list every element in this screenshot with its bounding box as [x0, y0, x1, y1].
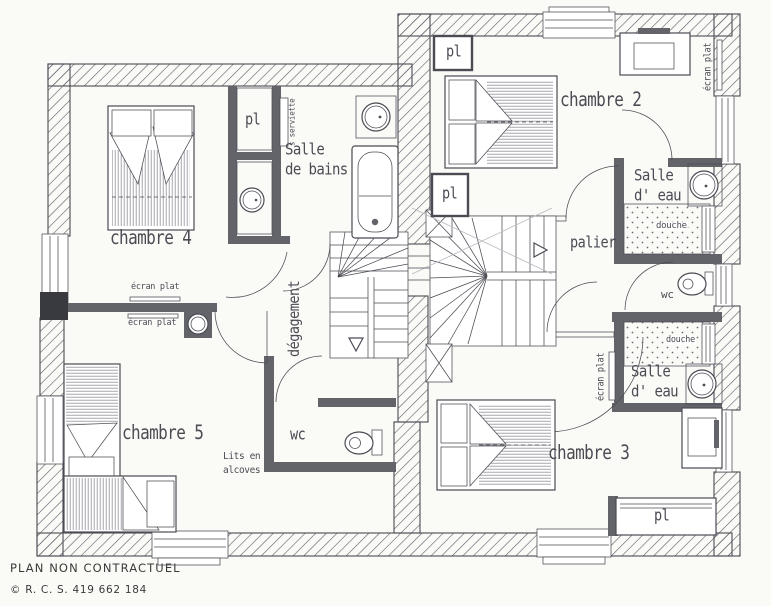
partition-chambre3-palier [547, 332, 614, 337]
window-left-lower [37, 396, 63, 464]
tv-chambre2 [717, 40, 722, 90]
door-chambre4 [226, 252, 287, 297]
footer-plan-non-contractuel: PLAN NON CONTRACTUEL [10, 563, 181, 575]
flue-conduit [184, 310, 212, 338]
room-label-chambre-4: chambre 4 [110, 228, 191, 248]
bed-chambre-5-bottom [64, 476, 176, 532]
room-label-chambre-5: chambre 5 [122, 423, 203, 443]
window-bottom-left [152, 531, 228, 565]
window-right-wc [716, 264, 732, 306]
chimney-block [40, 292, 68, 320]
door-chambre2 [566, 166, 618, 218]
door-wc-right [625, 262, 673, 310]
salle-de-bains-line2: de bains [285, 161, 348, 179]
tv-label-chambre4: écran plat [131, 283, 179, 292]
closet-label-pl-chambre2-bottom: pl [442, 187, 457, 203]
towel-radiator-label: s serviette [288, 99, 296, 146]
door-wc-left [276, 356, 322, 402]
room-label-wc-right: wc [661, 289, 674, 300]
lits-line1: Lits en [223, 451, 260, 462]
room-label-salle-eau-lower: Salled' eau [631, 362, 678, 403]
tv-label-chambre5: écran plat [128, 319, 176, 328]
room-label-degagement: dégagement [288, 281, 303, 357]
staircase-palier [412, 208, 556, 382]
closet-label-pl-chambre2-top: pl [446, 45, 461, 61]
tv-chambre3 [609, 352, 615, 400]
door-chambre5 [215, 311, 267, 363]
shower-label-lower: douche [665, 336, 696, 345]
toilet-wc-left [345, 430, 382, 455]
closet-label-pl-chambre3: pl [654, 509, 669, 525]
shaft-box-bottom [426, 344, 452, 382]
room-label-salle-de-bains: Sallede bains [285, 140, 348, 181]
window-top-right [543, 7, 615, 38]
tv-chambre4 [130, 297, 180, 301]
lits-line2: alcoves [223, 465, 260, 476]
desk-chambre-2 [620, 28, 690, 75]
room-label-chambre-3: chambre 3 [548, 443, 629, 463]
room-label-palier: palier [570, 236, 616, 252]
room-label-chambre-2: chambre 2 [560, 90, 641, 110]
room-label-wc-left: wc [290, 428, 305, 444]
bed-chambre-2 [445, 76, 557, 168]
salle-eau-upper-line2: d' eau [634, 187, 681, 205]
footer-rcs-number: © R. C. S. 419 662 184 [10, 585, 147, 596]
tv-label-chambre2: écran plat [704, 43, 713, 91]
room-label-salle-eau-upper: Salled' eau [634, 166, 681, 207]
desk-chambre-3 [682, 408, 722, 468]
toilet-wc-right [678, 272, 713, 295]
closet-label-pl-sdb: pl [245, 113, 260, 129]
bathtub [352, 146, 398, 238]
bed-chambre-4 [108, 106, 194, 230]
salle-eau-lower-line2: d' eau [631, 383, 678, 401]
washbasin-nook [237, 162, 272, 234]
window-bottom-right [537, 529, 611, 564]
salle-eau-upper-line1: Salle [634, 167, 673, 185]
shower-label-upper: douche [655, 222, 688, 231]
bed-chambre-5-left [64, 364, 120, 484]
tv-label-chambre3: écran plat [597, 353, 606, 401]
door-salle-eau-upper [622, 110, 672, 160]
note-lits-en-alcoves: Lits enalcoves [223, 450, 260, 478]
bed-chambre-3 [437, 400, 555, 490]
floor-plan-page: chambre 4 chambre 5 chambre 2 chambre 3 … [0, 0, 771, 606]
window-right-chambre2 [716, 96, 734, 164]
washbasin-salle-de-bains [356, 96, 396, 138]
salle-eau-lower-line1: Salle [631, 363, 670, 381]
